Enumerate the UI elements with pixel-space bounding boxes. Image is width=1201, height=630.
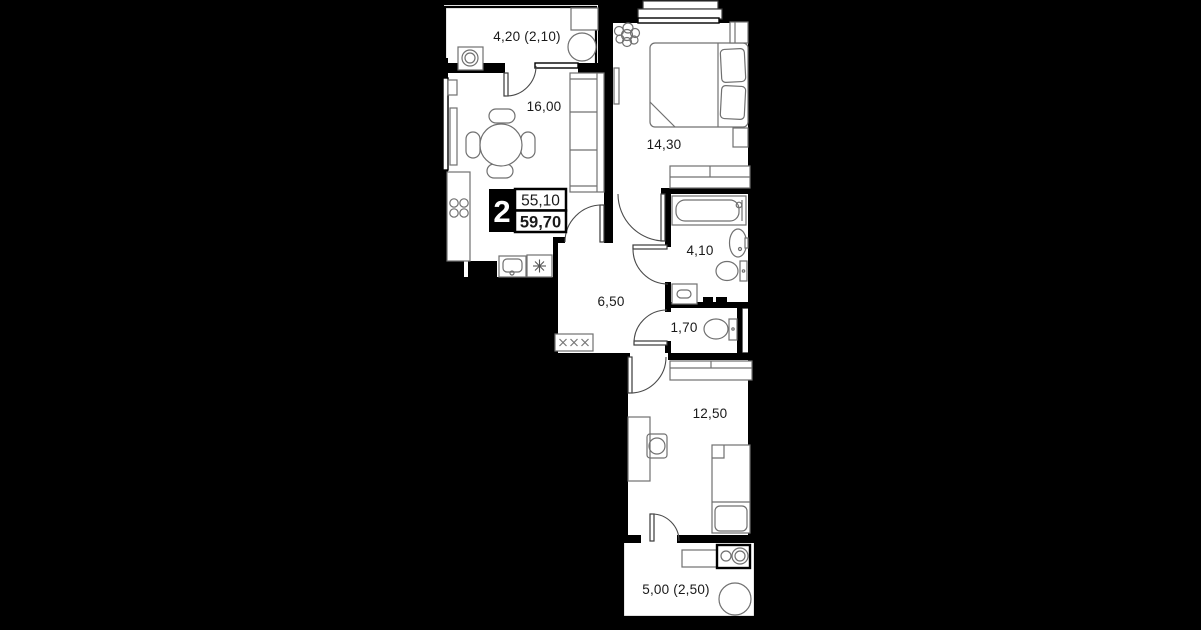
balcony-table-icon xyxy=(682,550,717,567)
window-bedroom xyxy=(638,18,719,23)
kitchen-sink-icon xyxy=(499,256,526,277)
window-living-left xyxy=(443,78,448,170)
room-label-wc: 1,70 xyxy=(670,320,697,335)
vent-shaft-block xyxy=(716,297,727,308)
tv-icon xyxy=(614,68,619,104)
wardrobe-icon xyxy=(670,361,752,380)
kitchen-cabinet-block xyxy=(468,261,497,281)
dining-table-icon xyxy=(480,124,522,166)
single-bed-icon xyxy=(712,445,750,533)
room-label-kitchen-living: 16,00 xyxy=(527,99,562,114)
floor-plan-canvas: 4,20 (2,10) 16,00 14,30 4,10 6,50 1,70 1… xyxy=(0,0,1201,630)
washing-machine-icon xyxy=(458,47,483,70)
sofa-icon xyxy=(570,73,604,192)
room-label-bathroom: 4,10 xyxy=(686,243,713,258)
balcony-cabinet-icon xyxy=(571,8,598,30)
room-label-balcony-top: 4,20 (2,10) xyxy=(493,29,561,44)
window-kitchen-balcony xyxy=(535,63,578,68)
round-table-icon xyxy=(568,33,596,61)
bathtub-icon xyxy=(672,196,746,225)
toilet-icon xyxy=(704,319,737,340)
kitchen-cabinet-block xyxy=(446,261,464,281)
room-label-hallway: 6,50 xyxy=(597,294,624,309)
basin-table-icon xyxy=(672,284,697,304)
balcony-stove-icon xyxy=(717,545,750,568)
dresser-icon xyxy=(670,166,750,188)
badge-area-total: 59,70 xyxy=(520,214,561,232)
room-label-bedroom-2: 12,50 xyxy=(693,406,728,421)
double-bed-icon xyxy=(650,43,748,127)
room-label-balcony-bottom: 5,00 (2,50) xyxy=(642,582,710,597)
hall-wardrobe-icon xyxy=(555,334,593,351)
vent-shaft-block xyxy=(703,297,713,308)
room-label-bedroom: 14,30 xyxy=(647,137,682,152)
window-parapet xyxy=(638,1,722,19)
area-badge: 2 55,10 59,70 xyxy=(489,189,566,232)
badge-rooms-count: 2 xyxy=(493,194,510,229)
toilet-icon xyxy=(716,261,747,281)
apartment-floor-plan: 4,20 (2,10) 16,00 14,30 4,10 6,50 1,70 1… xyxy=(0,0,1201,630)
badge-area-living: 55,10 xyxy=(521,193,560,210)
fridge-icon xyxy=(527,255,552,277)
